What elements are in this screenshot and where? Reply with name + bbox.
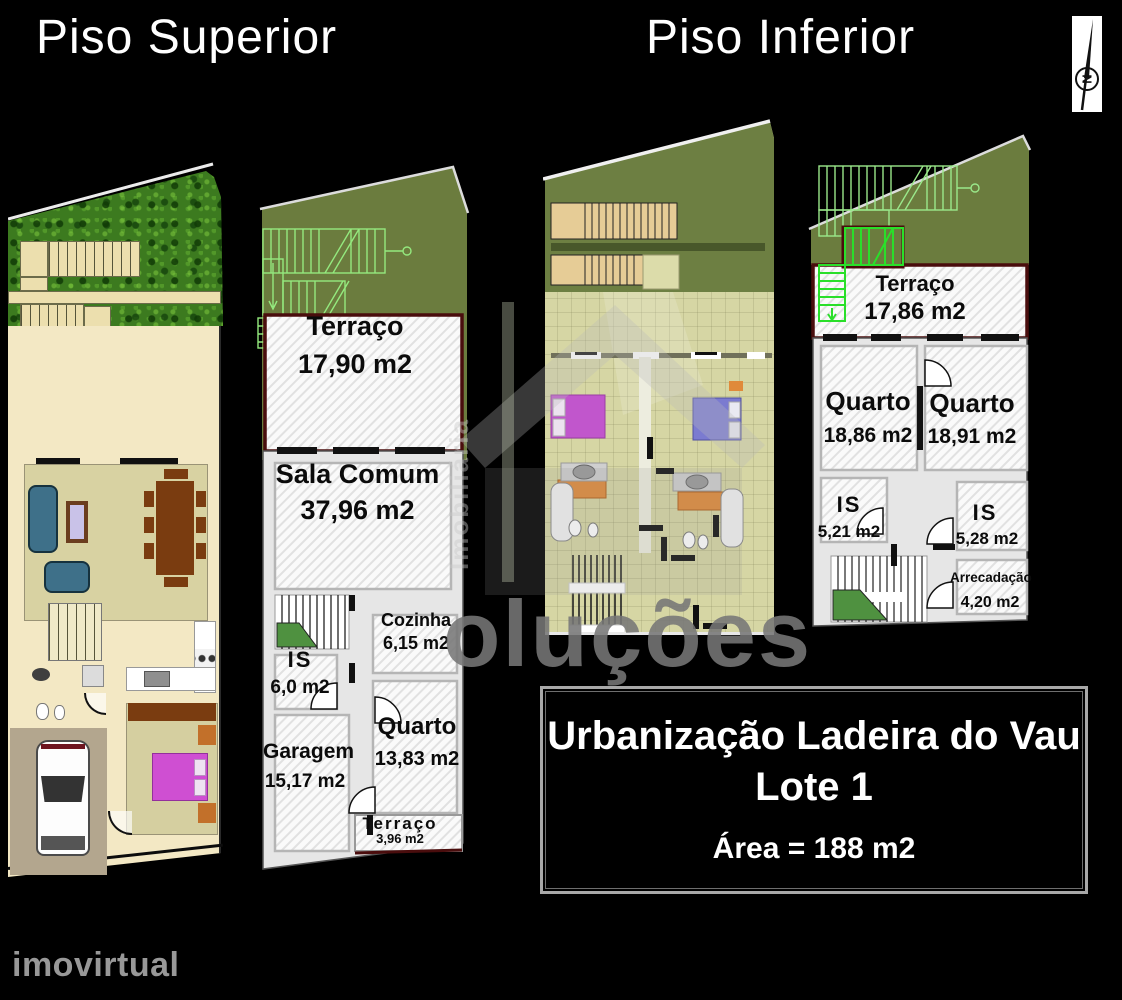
room-label-quarto: Quarto — [374, 714, 460, 739]
chair-icon — [144, 543, 154, 559]
room-area-is-left: 5,21 m2 — [812, 523, 886, 541]
room-area-quarto-left: 18,86 m2 — [814, 425, 922, 447]
car-windshield — [41, 776, 85, 802]
car-icon — [36, 740, 90, 856]
room-label-is: IS — [268, 648, 332, 671]
nightstand-icon — [198, 725, 216, 745]
room-area-quarto-right: 18,91 m2 — [920, 426, 1024, 448]
room-area-quarto: 13,83 m2 — [372, 749, 462, 770]
room-area-garagem: 15,17 m2 — [263, 772, 347, 792]
room-label-sala: Sala Comum — [265, 460, 450, 488]
pillow-icon — [194, 759, 206, 776]
info-box-inner: Urbanização Ladeira do Vau Lote 1 Área =… — [545, 691, 1083, 889]
room-area-terraco-small: 3,96 m2 — [353, 832, 447, 846]
garden-stairs-upper — [48, 241, 140, 277]
sofa-icon — [28, 485, 58, 553]
compass-n-label: N — [1080, 74, 1095, 83]
room-label-quarto-left: Quarto — [817, 388, 919, 415]
info-area-line: Área = 188 m2 — [546, 832, 1082, 866]
toilet-icon — [36, 703, 49, 720]
info-box: Urbanização Ladeira do Vau Lote 1 Área =… — [540, 686, 1088, 894]
chair-icon — [196, 543, 206, 559]
title-piso-inferior: Piso Inferior — [646, 10, 915, 65]
nightstand-icon — [198, 803, 216, 823]
garden-deck-landing — [20, 241, 48, 277]
pillow-icon — [194, 779, 206, 796]
wardrobe-icon — [128, 703, 216, 721]
chair-icon — [196, 491, 206, 507]
sofa-small-icon — [44, 561, 90, 593]
bathroom-sink-icon — [32, 668, 50, 681]
imovirtual-logo: imovirtual — [12, 946, 179, 985]
room-area-terraco: 17,90 m2 — [265, 350, 445, 378]
kitchen-sink-icon — [144, 671, 170, 687]
room-area-arrecadacao: 4,20 m2 — [950, 595, 1030, 612]
bidet-icon — [54, 705, 65, 720]
chair-icon — [144, 491, 154, 507]
watermark-stripe — [502, 302, 514, 582]
room-area-is-right: 5,28 m2 — [948, 530, 1026, 548]
watermark-body-shape — [485, 468, 742, 595]
room-area-sala: 37,96 m2 — [265, 496, 450, 524]
car-rear — [41, 836, 85, 850]
chair-icon — [164, 577, 188, 587]
watermark-big-text: oluções — [443, 580, 812, 688]
chair-icon — [144, 517, 154, 533]
room-label-quarto-right: Quarto — [920, 390, 1024, 417]
chair-icon — [164, 469, 188, 479]
car-bumper — [41, 744, 85, 749]
window-bars — [277, 447, 445, 454]
picture-frame-icon — [66, 501, 88, 543]
info-line2: Lote 1 — [546, 765, 1082, 810]
floorplan-image: Piso Superior Piso Inferior N — [0, 0, 1122, 1000]
info-line1: Urbanização Ladeira do Vau — [546, 714, 1082, 759]
room-label-terraco-lower: Terraço — [850, 272, 980, 295]
dining-table-icon — [156, 481, 194, 575]
room-label-is-right: IS — [956, 501, 1014, 524]
room-label-terraco: Terraço — [265, 312, 445, 340]
room-label-arrecadacao: Arrecadação — [950, 571, 1030, 585]
garden-step — [20, 277, 48, 291]
garden-walkway — [8, 291, 221, 304]
room-label-garagem: Garagem — [263, 741, 347, 763]
interior-stairs — [48, 603, 102, 661]
plan-inferior-schematic — [805, 128, 1033, 633]
north-compass-icon: N — [1072, 16, 1102, 112]
chair-icon — [196, 517, 206, 533]
plan-superior-furnished — [8, 163, 236, 883]
room-area-is: 6,0 m2 — [262, 678, 338, 698]
room-label-is-left: IS — [820, 493, 878, 516]
watermark-vertical-text: Imobiliária — [444, 418, 474, 570]
shower-icon — [82, 665, 104, 687]
room-area-terraco-lower: 17,86 m2 — [845, 299, 985, 324]
title-piso-superior: Piso Superior — [36, 10, 337, 65]
kitchen-counter — [126, 667, 216, 691]
